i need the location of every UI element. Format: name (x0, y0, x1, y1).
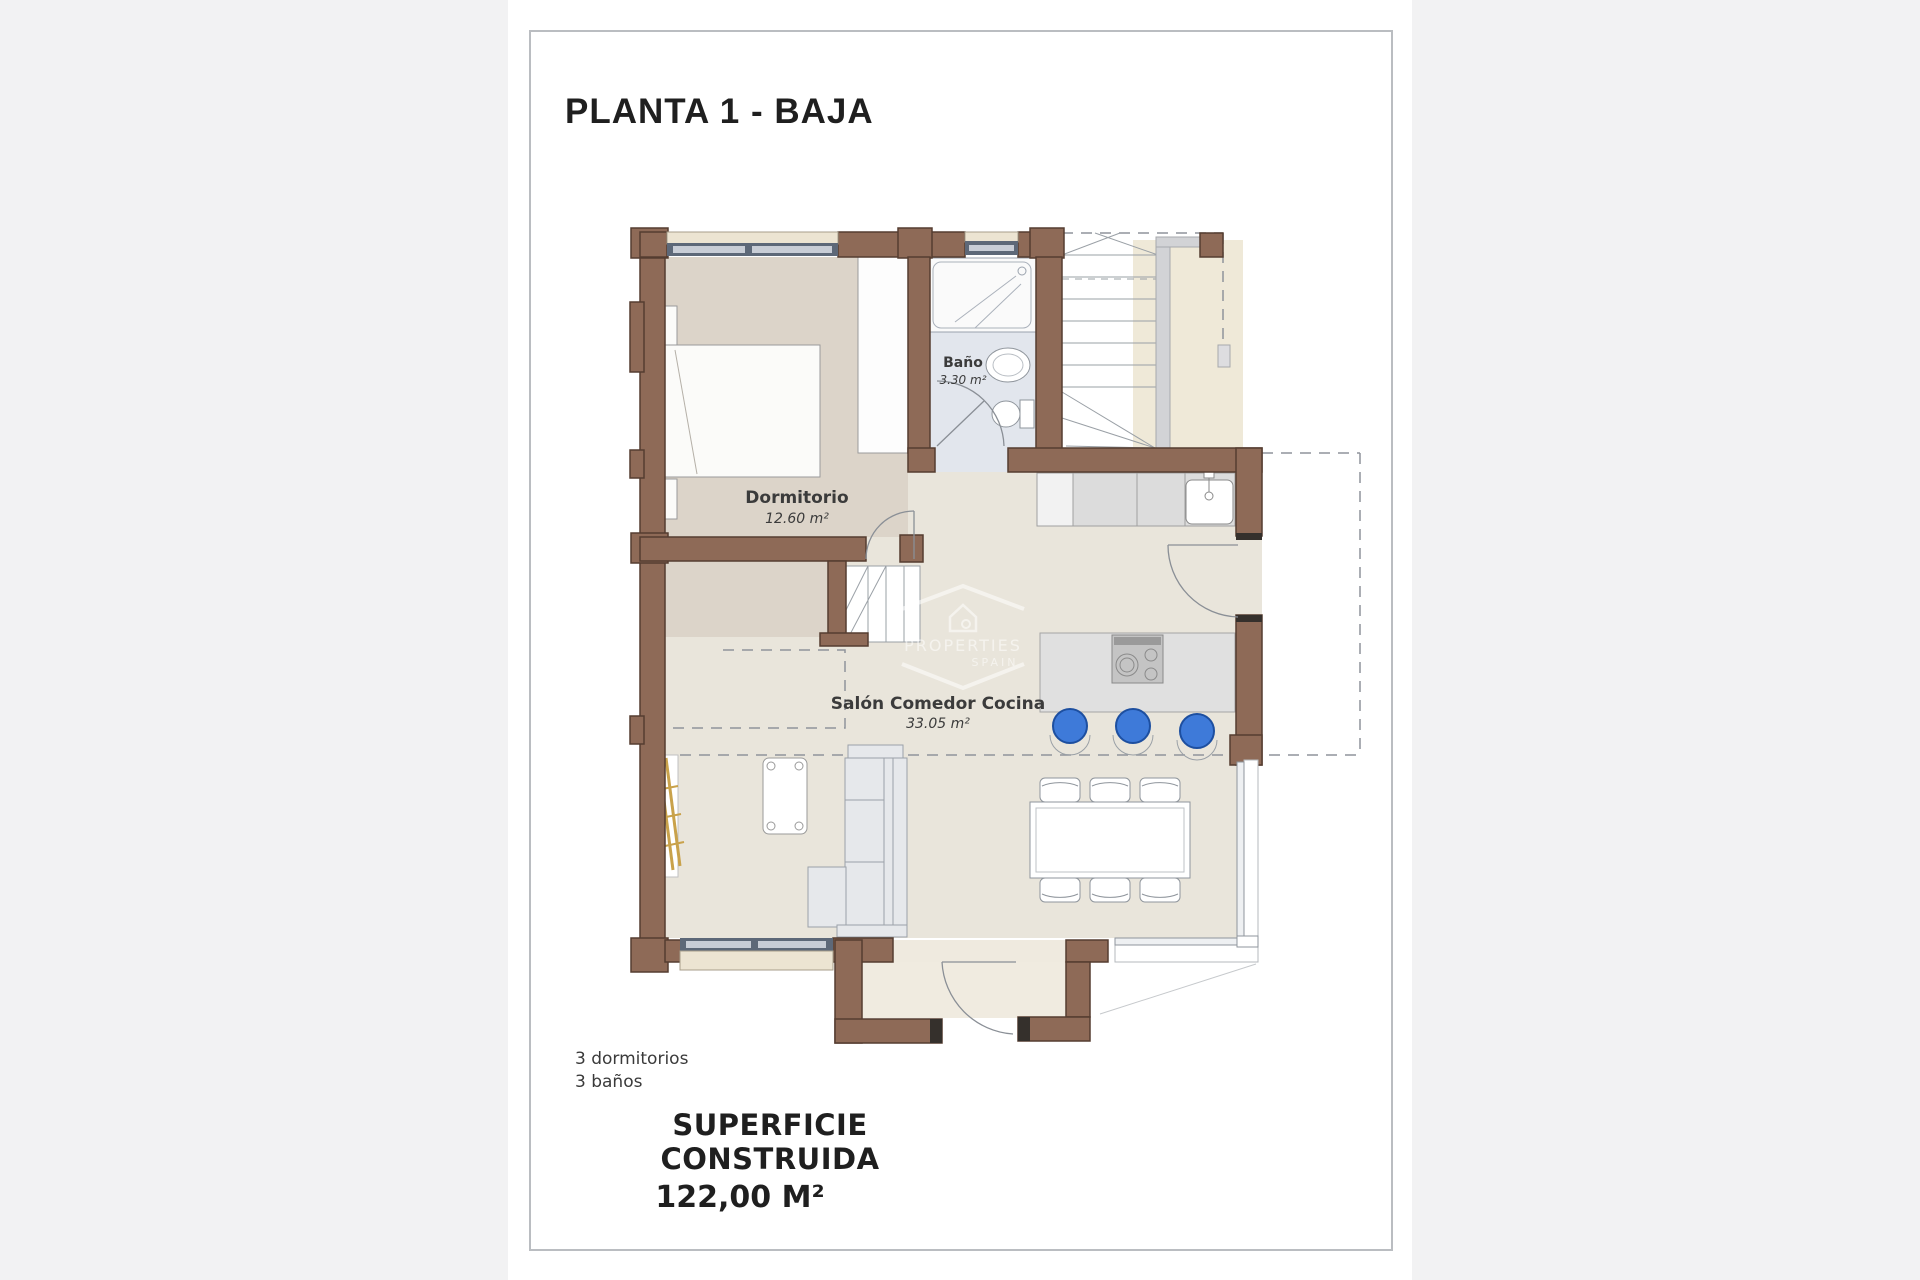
superficie-label: SUPERFICIE CONSTRUIDA (600, 1108, 940, 1176)
summary-dormitorios: 3 dormitorios (575, 1048, 688, 1071)
pilaster (630, 716, 644, 744)
jamb (930, 1019, 942, 1043)
terrace-wall (1156, 237, 1170, 453)
stool-seat (1180, 714, 1214, 748)
pilaster (898, 228, 932, 258)
floor-plan-drawing: Dormitorio 12.60 m² Baño 3.30 m² Salón C… (0, 0, 1920, 1280)
jamb (1236, 533, 1262, 540)
glass-sill-vertical (1244, 760, 1258, 945)
toilet-tank (1020, 400, 1034, 428)
summary-block: 3 dormitorios 3 baños (575, 1048, 688, 1094)
pillar-terrace (1200, 233, 1223, 257)
wall-bedroom-bottom (640, 537, 866, 561)
label-salon: Salón Comedor Cocina (831, 694, 1045, 714)
floor-kitchen-door-gap (1238, 540, 1262, 617)
label-bano: Baño (943, 355, 983, 371)
toilet-bowl (992, 401, 1020, 427)
table-leg (767, 822, 775, 830)
wall-door-jamb (900, 535, 923, 562)
label-salon-area: 33.05 m² (906, 716, 970, 732)
superficie-block: SUPERFICIE CONSTRUIDA 122,00 M² (600, 1108, 940, 1215)
label-dormitorio-area: 12.60 m² (765, 511, 829, 527)
wall-bath-bottom (908, 448, 935, 472)
porch-wall-left-bottom (835, 1019, 942, 1043)
table-leg (767, 762, 775, 770)
porch-floor (862, 962, 1066, 1018)
chair (1040, 878, 1080, 902)
window-sill (965, 232, 1018, 242)
wall-bath-stairs (1036, 257, 1062, 453)
window-pane (969, 245, 1014, 251)
summary-banos: 3 baños (575, 1071, 688, 1094)
entry-threshold (893, 940, 1066, 962)
floor-bath-door-gap (935, 448, 1008, 472)
glass-line-horizontal (1115, 938, 1244, 945)
stool-seat (1116, 709, 1150, 743)
chair (1090, 778, 1130, 802)
floor-bathroom (930, 330, 1036, 448)
kitchen-tall-unit (1037, 473, 1073, 526)
sofa-armrest-bottom (837, 925, 907, 937)
window-bathroom (965, 232, 1018, 255)
stool-seat (1053, 709, 1087, 743)
floor-dressing (665, 561, 828, 637)
pilaster (1030, 228, 1064, 258)
window-pane (673, 246, 745, 253)
window-sill (667, 232, 838, 244)
chair (1140, 778, 1180, 802)
chair (1090, 878, 1130, 902)
label-bano-area: 3.30 m² (939, 373, 986, 387)
wall-bedroom-bath (908, 257, 930, 453)
hall-mini-stair (846, 566, 920, 642)
glass-sill-horizontal (1115, 945, 1258, 962)
terrace-notch (1218, 345, 1230, 367)
window-pane (758, 941, 826, 948)
wall-right-upper (1236, 448, 1262, 536)
pilaster (630, 450, 644, 478)
window-pane (752, 246, 832, 253)
porch-wall-right-top (1066, 940, 1108, 962)
faucet-base (1204, 472, 1214, 478)
pilaster (631, 938, 668, 972)
sofa-body (845, 758, 907, 937)
superficie-value: 122,00 M² (570, 1180, 910, 1215)
porch-wall-right (1066, 962, 1090, 1017)
wall-top (640, 232, 667, 257)
sofa-chaise (808, 867, 846, 927)
label-dormitorio: Dormitorio (745, 488, 848, 508)
chair (1140, 878, 1180, 902)
jamb (1018, 1017, 1030, 1041)
window-sill (680, 951, 833, 970)
chair (1040, 778, 1080, 802)
screenshot-root: { "page": { "title": "PLANTA 1 - BAJA", … (0, 0, 1920, 1280)
window-bedroom (667, 232, 838, 256)
jamb (1236, 615, 1262, 622)
pilaster (630, 302, 644, 372)
corner-flare-line (1100, 964, 1256, 1014)
wall-stair-bottom (820, 633, 868, 646)
dining-chairs-bottom (1040, 878, 1180, 902)
table-leg (795, 762, 803, 770)
glass-corner-post (1237, 936, 1258, 947)
dining-set (1030, 778, 1190, 902)
table-leg (795, 822, 803, 830)
window-pane (686, 941, 751, 948)
wardrobe (858, 257, 908, 453)
hob-controls (1114, 637, 1161, 645)
wall-dressing-right (828, 561, 846, 643)
window-living (680, 938, 833, 970)
wall-kitchen-top (1008, 448, 1262, 472)
sofa-armrest-top (848, 745, 903, 759)
glass-line-vertical (1237, 762, 1244, 940)
watermark-text-1: PROPERTIES (904, 636, 1022, 655)
faucet-head (1205, 492, 1213, 500)
dining-chairs-top (1040, 778, 1180, 802)
dining-table (1030, 802, 1190, 878)
mini-stair-box (846, 566, 920, 642)
